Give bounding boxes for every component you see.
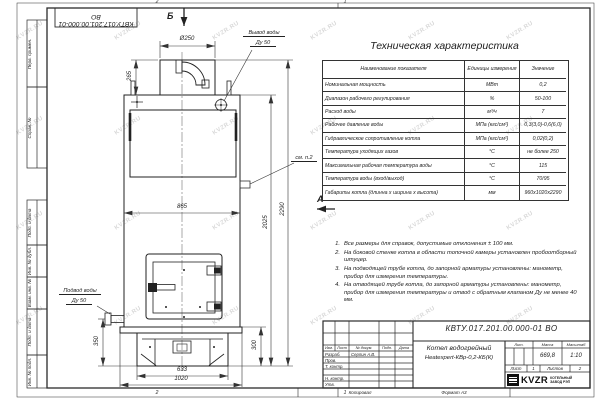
logo-subtext-line2: ЗАВОД РЭП xyxy=(550,380,572,384)
spec-cell-name: Диапазон рабочего регулирования xyxy=(323,92,465,105)
note-number: 1. xyxy=(329,241,340,249)
spec-cell-name: Гидравлическое сопротивление котла xyxy=(323,133,465,146)
tb-designation: КВТУ.017.201.00.000-01 ВО xyxy=(415,324,588,333)
spec-cell-value: 0,2 xyxy=(520,79,566,92)
spec-cell-value: 50-100 xyxy=(520,92,566,105)
see-note-label: см. п.2 xyxy=(291,155,317,162)
inlet-flange xyxy=(105,313,124,325)
note-item: 3. На подводящей трубе котла, до запорно… xyxy=(329,266,581,281)
dim-width: 865 xyxy=(170,204,194,210)
tb-row-prov: Пров. xyxy=(325,358,336,363)
footer-format: Формат А3 xyxy=(428,390,480,395)
view-b-label: Б xyxy=(167,11,173,21)
dim-collar: 265 xyxy=(127,59,133,93)
spec-cell-name: Температура уходящих газов xyxy=(323,146,465,159)
tb-razrab-name: Серпин А.В. xyxy=(351,352,375,357)
zone-number: 2 xyxy=(152,390,162,396)
logo-subtext: КОТЕЛЬНЫЙ ЗАВОД РЭП xyxy=(550,376,572,384)
tb-row-razrab: Разраб. xyxy=(325,352,341,357)
dim-h-total: 2290 xyxy=(280,192,286,226)
dim-flue: Ø250 xyxy=(168,36,206,42)
mark-cross xyxy=(131,96,143,108)
view-arrows xyxy=(184,8,335,209)
side-label-perv: Перв. примен. xyxy=(27,22,37,86)
logo-mark-icon xyxy=(507,374,519,386)
fuel-door xyxy=(146,254,222,319)
outlet-leader xyxy=(224,50,252,101)
spec-cell-unit: мм xyxy=(465,186,520,199)
dim-base-h: 300 xyxy=(252,328,258,362)
dim-overall-w: 1020 xyxy=(166,376,196,382)
spec-cell-value: 0,02(0,2) xyxy=(520,133,566,146)
see-note-leader xyxy=(250,163,294,184)
dim-h-body: 2025 xyxy=(263,205,269,239)
tb-scale-value: 1:10 xyxy=(562,353,590,359)
spec-cell-value: 7 xyxy=(520,106,566,119)
pedestal-details xyxy=(141,339,224,366)
note-item: 4. На отводящей трубе котла, до запорной… xyxy=(329,282,581,305)
note-text: На отводящей трубе котла, до запорной ар… xyxy=(344,282,581,305)
door-hardware xyxy=(148,266,221,318)
spec-cell-name: Габариты котла (длинна х ширина х высота… xyxy=(323,186,465,199)
dim-inlet-h: 350 xyxy=(94,324,100,358)
note-number: 4. xyxy=(329,282,340,305)
note-text: На боковой стенке котла в области топочн… xyxy=(344,250,581,265)
tb-mass-label: Масса xyxy=(533,342,562,347)
spec-col-header: Наименование показателя xyxy=(323,61,465,79)
inlet-dn-label: Ду 50 xyxy=(66,298,92,305)
tb-sheet-label: Лист xyxy=(505,366,527,371)
tb-col-izm: Изм. xyxy=(323,346,335,350)
base-plate xyxy=(120,327,242,333)
spec-cell-unit: МПа (кгс/см²) xyxy=(465,133,520,146)
tb-product-name-2: Heatexpert-КВр-0,2-КБ(К) xyxy=(413,355,505,361)
tb-col-data: Дата xyxy=(395,346,413,350)
spec-table: Наименование показателя Единицы измерени… xyxy=(322,60,569,201)
tb-sheet-value: 1 xyxy=(527,366,540,371)
logo-text: KVZR xyxy=(521,375,548,386)
upper-panel xyxy=(130,110,236,177)
spec-cell-name: Рабочее давление воды xyxy=(323,119,465,132)
inlet-leader xyxy=(97,306,110,314)
spec-cell-unit: МВт xyxy=(465,79,520,92)
spec-cell-value: 0,3(3,0)-0,6(6,0) xyxy=(520,119,566,132)
zone-number: 1 xyxy=(340,0,350,5)
note-number: 2. xyxy=(329,250,340,265)
outlet-label: Вывод воды xyxy=(243,30,285,37)
note-item: 1. Все размеры для справок, допустимые о… xyxy=(329,241,581,249)
note-item: 2. На боковой стенке котла в области топ… xyxy=(329,250,581,265)
tb-col-doc: № докум. xyxy=(349,346,379,350)
spec-cell-unit: МПа (кгс/см²) xyxy=(465,119,520,132)
spec-cell-unit: °С xyxy=(465,146,520,159)
tb-scale-label: Масштаб xyxy=(562,342,590,347)
spec-cell-name: Номинальная мощность xyxy=(323,79,465,92)
zone-number: 2 xyxy=(152,0,162,5)
sampling-fitting xyxy=(240,181,250,188)
spec-cell-value: 960х1020х2290 xyxy=(520,186,566,199)
spec-cell-name: Расход воды xyxy=(323,106,465,119)
spec-table-title: Техническая характеристика xyxy=(322,40,567,52)
side-label-sprav: Справ. № xyxy=(27,96,37,160)
dim-base-w: 633 xyxy=(170,367,194,373)
spec-cell-value: 70/95 xyxy=(520,173,566,186)
spec-cell-unit: м³/ч xyxy=(465,106,520,119)
spec-cell-name: Температура воды (вход/выход) xyxy=(323,173,465,186)
spec-cell-value: не более 250 xyxy=(520,146,566,159)
tb-col-podp: Подп. xyxy=(379,346,395,350)
spec-cell-value: 115 xyxy=(520,159,566,172)
tb-sheets-label: Листов xyxy=(540,366,570,371)
tb-lit-label: Лит. xyxy=(505,342,533,347)
tb-row-tkontr: Т. контр. xyxy=(325,364,344,369)
elbow-pipe xyxy=(176,60,209,88)
note-text: Все размеры для справок, допустимые откл… xyxy=(344,241,514,249)
drawing-sheet: KVZR.RUKVZR.RUKVZR.RUKVZR.RUKVZR.RUKVZR.… xyxy=(0,0,600,400)
footer-copied: Копировал xyxy=(330,390,390,395)
tb-sheets-value: 2 xyxy=(570,366,590,371)
spec-col-header: Единицы измерения xyxy=(465,61,520,79)
tb-product-name-1: Котел водогрейный xyxy=(414,345,504,352)
corner-reference: КВТУ.017.201.00.000-01 ВО xyxy=(55,8,137,27)
spec-cell-unit: °С xyxy=(465,173,520,186)
flue-collar xyxy=(160,60,215,95)
manufacturer-logo: KVZR КОТЕЛЬНЫЙ ЗАВОД РЭП xyxy=(507,373,588,387)
inlet-label: Подвод воды xyxy=(59,288,101,295)
boiler-front-view xyxy=(105,52,242,372)
outlet-dn-label: Ду 50 xyxy=(250,40,276,47)
spec-cell-unit: °С xyxy=(465,159,520,172)
spec-cell-unit: % xyxy=(465,92,520,105)
notes-list: 1. Все размеры для справок, допустимые о… xyxy=(329,241,581,306)
note-text: На подводящей трубе котла, до запорной а… xyxy=(344,266,581,281)
tb-mass-value: 669,8 xyxy=(533,353,562,359)
note-number: 3. xyxy=(329,266,340,281)
spec-cell-name: Максимальная рабочая температура воды xyxy=(323,159,465,172)
tb-row-nkontr: Н. контр. xyxy=(325,376,344,381)
spec-col-header: Значение xyxy=(520,61,566,79)
tb-row-utv: Утв. xyxy=(325,382,335,387)
side-label-inv-podl: Инв. № подл. xyxy=(27,340,37,400)
tb-col-list: Лист xyxy=(335,346,349,350)
